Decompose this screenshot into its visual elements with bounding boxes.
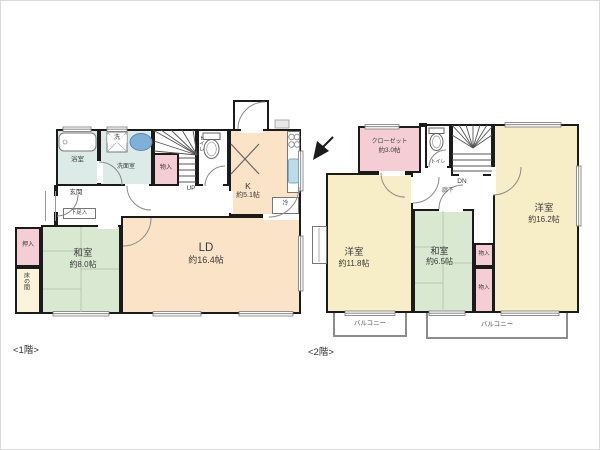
label-monoire-1f: 物入 bbox=[153, 165, 179, 173]
label-balcony-left: バルコニー bbox=[333, 320, 407, 328]
label-getabako: 下足入 bbox=[61, 210, 97, 217]
label-closet-2f: クローゼット 約3.0帖 bbox=[358, 139, 421, 155]
door-opening bbox=[125, 184, 149, 190]
room-yoshitsu-left-2f bbox=[326, 173, 413, 313]
floorplan-image: 浴室 洗 洗面室 物入 UP トイレ K 約5.1帖 冷 玄関 下足入 和室 約… bbox=[0, 0, 600, 450]
north-arrow-icon bbox=[313, 137, 333, 160]
entrance-porch-1f bbox=[45, 191, 56, 221]
label-up: UP bbox=[179, 185, 203, 193]
door-opening bbox=[439, 207, 463, 212]
label-yoshitsu-left: 洋室 約11.8帖 bbox=[319, 247, 389, 269]
door-opening bbox=[411, 177, 416, 203]
back-porch-1f bbox=[233, 100, 269, 131]
label-balcony-right: バルコニー bbox=[426, 321, 568, 329]
label-washitsu-2f: 和室 約6.5帖 bbox=[409, 246, 470, 267]
door-opening bbox=[241, 128, 263, 133]
label-washroom: 洗面室 bbox=[97, 164, 155, 172]
label-monoire-bottom-2f: 物入 bbox=[474, 285, 494, 292]
label-monoire-top-2f: 物入 bbox=[474, 251, 494, 258]
label-laundry: 洗 bbox=[107, 135, 127, 143]
label-tokonoma: 床の間 bbox=[21, 272, 29, 290]
label-oshiire: 押入 bbox=[15, 242, 41, 250]
door-opening bbox=[263, 214, 299, 220]
label-toilet-1f: トイレ bbox=[197, 135, 204, 152]
door-opening bbox=[491, 167, 496, 195]
vent-icon bbox=[275, 120, 289, 128]
label-dn: DN bbox=[449, 178, 475, 186]
door-opening bbox=[428, 166, 447, 170]
label-hallway: 廊下 bbox=[435, 188, 461, 196]
label-toilet-2f: トイレ bbox=[425, 159, 451, 165]
door-opening bbox=[379, 171, 405, 176]
door-opening bbox=[98, 223, 118, 229]
label-kitchen: K 約5.1帖 bbox=[223, 181, 273, 200]
label-fridge: 冷 bbox=[272, 201, 299, 209]
label-ld: LD 約16.4帖 bbox=[151, 241, 261, 267]
staircase-2f bbox=[451, 124, 493, 176]
wall-segment bbox=[419, 123, 427, 127]
label-yoshitsu-right: 洋室 約16.2帖 bbox=[501, 203, 587, 225]
label-genkan: 玄関 bbox=[56, 189, 96, 197]
kitchen-counter bbox=[287, 131, 300, 193]
caption-floor1: <1階> bbox=[13, 345, 39, 357]
door-opening bbox=[203, 184, 223, 190]
caption-floor2: <2階> bbox=[308, 347, 334, 359]
label-washitsu-1f: 和室 約8.0帖 bbox=[43, 248, 123, 270]
label-bath: 浴室 bbox=[56, 156, 99, 164]
